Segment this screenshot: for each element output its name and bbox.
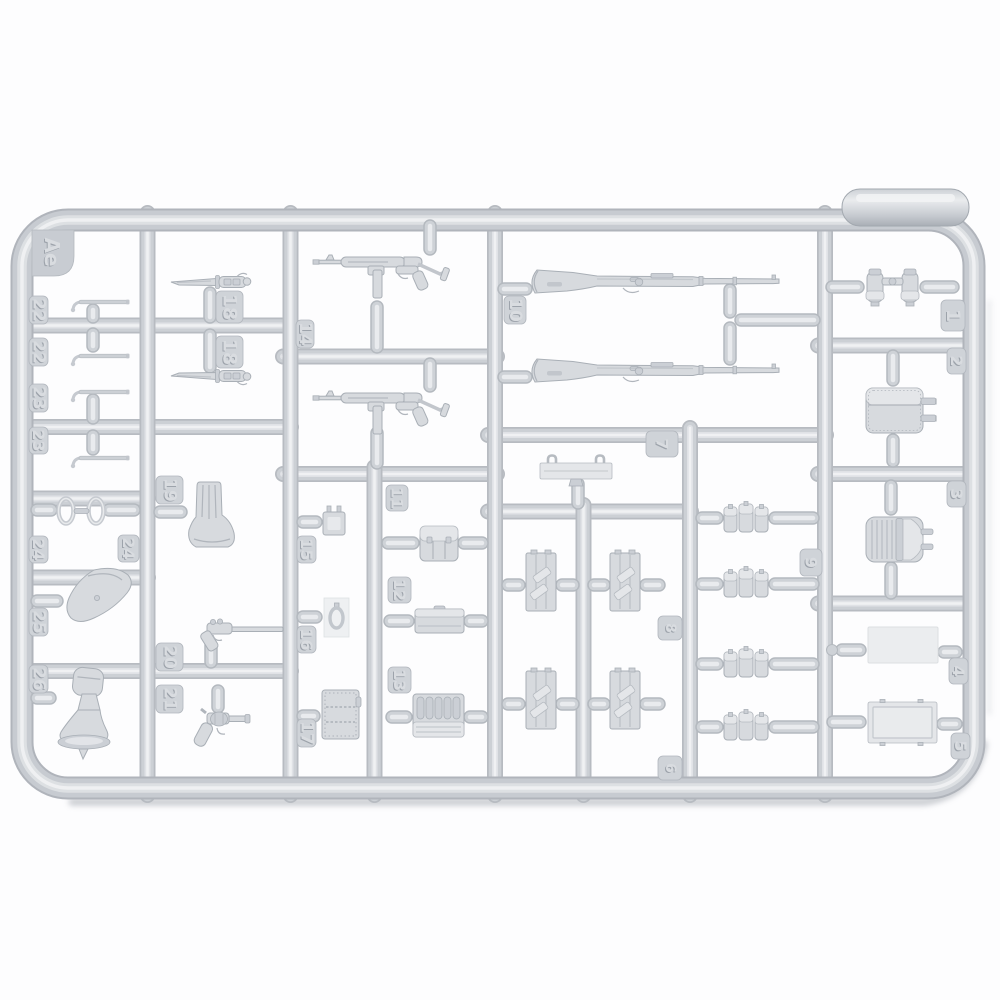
part-tag-t9: 99 bbox=[800, 549, 822, 576]
part-10-kar98k-rifle-b bbox=[532, 359, 779, 382]
part-number: 19 bbox=[160, 478, 180, 502]
part-tag-t4: 44 bbox=[948, 658, 968, 684]
part-6-panel-b bbox=[610, 668, 640, 729]
part-21-revolver bbox=[192, 709, 250, 748]
part-number: 16 bbox=[297, 628, 316, 650]
part-13-ribbed-box bbox=[413, 694, 464, 737]
part-number: 12 bbox=[390, 579, 409, 601]
part-number: 11 bbox=[388, 487, 407, 509]
part-tag-t18a: 1818 bbox=[216, 291, 243, 323]
part-tag-t8: 88 bbox=[658, 616, 682, 640]
ring-link bbox=[74, 509, 89, 514]
part-number: 18 bbox=[219, 294, 241, 320]
part-tag-t6: 66 bbox=[658, 756, 682, 780]
part-6-panel-a bbox=[526, 668, 556, 729]
part-tag-t13: 1313 bbox=[388, 667, 411, 693]
part-23-rod-b bbox=[71, 456, 130, 469]
part-number: 13 bbox=[390, 669, 409, 691]
part-tag-t17: 1717 bbox=[296, 719, 317, 747]
part-14-mp40-b bbox=[313, 391, 450, 434]
part-number: 9 bbox=[802, 557, 821, 568]
part-tag-t2: 22 bbox=[946, 348, 966, 374]
part-23-rod-a bbox=[71, 390, 130, 403]
part-tag-t5: 55 bbox=[950, 733, 970, 759]
part-tag-t10: 1010 bbox=[504, 296, 526, 324]
part-18-bayonet-a bbox=[171, 273, 251, 288]
part-tag-t7: 77 bbox=[646, 431, 678, 457]
part-tag-t20: 2020 bbox=[156, 643, 183, 671]
part-tag-t26: 2626 bbox=[28, 665, 49, 693]
part-number: 24 bbox=[29, 538, 48, 560]
part-20-luger-pistol bbox=[199, 619, 283, 652]
part-number: 17 bbox=[297, 721, 317, 745]
sprue-code: Ae bbox=[40, 237, 64, 266]
part-12-flat-box bbox=[415, 606, 464, 633]
part-8-panel-b bbox=[610, 550, 640, 611]
sprue-code-tab: Ae Ae bbox=[32, 230, 74, 276]
part-5-framed-plate bbox=[868, 700, 937, 746]
part-tag-t22b: 2222 bbox=[28, 338, 49, 366]
part-9-triple-pouch-b bbox=[724, 567, 768, 598]
part-tag-t14: 1414 bbox=[294, 320, 315, 348]
part-2-pouch bbox=[866, 388, 936, 433]
part-number: 14 bbox=[295, 322, 315, 346]
part-8-panel-a bbox=[526, 550, 556, 611]
part-number: 7 bbox=[653, 438, 672, 449]
part-number: 8 bbox=[662, 623, 678, 633]
part-9-triple-pouch-c bbox=[724, 647, 768, 678]
part-tag-t1: 11 bbox=[941, 300, 965, 331]
part-22-rod-b bbox=[71, 354, 130, 367]
part-number: 25 bbox=[29, 610, 49, 634]
part-15-buckle bbox=[323, 506, 345, 535]
part-14-mp40-a bbox=[313, 255, 450, 298]
part-number: 24 bbox=[119, 537, 138, 559]
part-tag-t24b: 2424 bbox=[118, 535, 139, 562]
part-9-triple-pouch-d bbox=[724, 710, 768, 741]
part-tag-t22a: 2222 bbox=[28, 296, 49, 324]
part-4-plate bbox=[868, 627, 938, 663]
sprue-image: Ae Ae 2222222223232323242424242525262618… bbox=[0, 0, 1000, 1000]
part-number: 10 bbox=[505, 298, 525, 322]
part-26-holster-bell bbox=[58, 667, 110, 759]
part-number: 3 bbox=[947, 488, 966, 499]
part-tag-t19: 1919 bbox=[156, 476, 183, 504]
part-number: 23 bbox=[29, 429, 48, 451]
part-number: 1 bbox=[942, 309, 964, 322]
part-1-binoculars bbox=[866, 269, 919, 306]
part-9-triple-pouch-a bbox=[724, 502, 768, 533]
part-tag-t3: 33 bbox=[946, 481, 966, 507]
part-tag-t11: 1111 bbox=[386, 485, 408, 511]
part-10-kar98k-rifle-a bbox=[532, 270, 779, 293]
part-tag-t24a: 2424 bbox=[28, 536, 48, 563]
part-number: 26 bbox=[29, 667, 49, 691]
part-tag-t18b: 1818 bbox=[216, 336, 243, 368]
part-number: 5 bbox=[951, 740, 970, 751]
part-11-ammo-pouch bbox=[420, 526, 458, 561]
part-tag-t21: 2121 bbox=[156, 685, 183, 713]
part-number: 2 bbox=[947, 355, 966, 366]
part-number: 21 bbox=[160, 687, 180, 711]
part-number: 22 bbox=[29, 298, 49, 322]
part-3-pouch bbox=[866, 517, 933, 562]
part-22-rod-a bbox=[71, 300, 130, 313]
sprue-gate-tab bbox=[842, 189, 969, 227]
part-tag-t15: 1515 bbox=[296, 536, 316, 563]
part-tag-t16: 1616 bbox=[296, 626, 316, 653]
part-number: 6 bbox=[662, 763, 678, 773]
sprue-photo: Ae Ae 2222222223232323242424242525262618… bbox=[0, 0, 1000, 1000]
part-17-ammo-box bbox=[322, 690, 361, 739]
part-number: 4 bbox=[949, 665, 968, 676]
part-number: 15 bbox=[297, 538, 316, 560]
part-7-hook-bracket bbox=[540, 456, 612, 487]
part-tag-t23a: 2323 bbox=[28, 384, 49, 412]
part-tag-t12: 1212 bbox=[388, 577, 411, 603]
part-number: 20 bbox=[160, 645, 180, 669]
part-19-holster bbox=[189, 482, 235, 547]
part-number: 23 bbox=[29, 386, 49, 410]
part-tag-t23b: 2323 bbox=[28, 427, 48, 454]
part-16-buckle-film bbox=[324, 598, 349, 637]
part-number: 18 bbox=[219, 339, 241, 365]
part-number: 22 bbox=[29, 340, 49, 364]
part-tag-t25: 2525 bbox=[28, 608, 49, 636]
runner-bulb bbox=[827, 645, 838, 656]
